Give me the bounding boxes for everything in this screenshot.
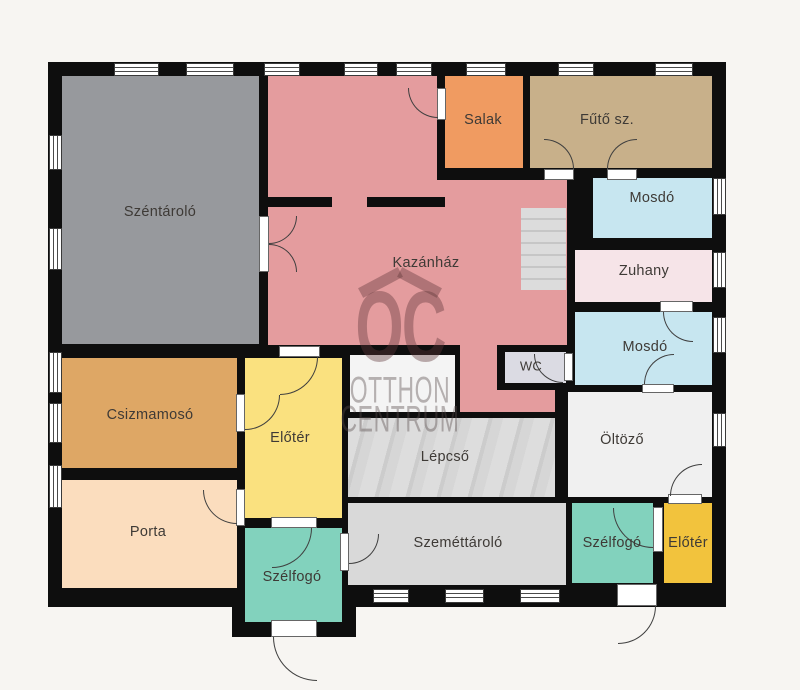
door-swing-szelfogo-jobb-kijarat [618, 606, 656, 644]
window [114, 63, 159, 76]
interior-wall [367, 197, 445, 207]
room-label-eloter-kozep: Előtér [270, 430, 310, 446]
door-opening-csizmamoso-eloter [236, 394, 245, 432]
door-opening-futo-bal [544, 169, 574, 180]
window [713, 252, 726, 288]
door-opening-szentarolo-kazanhaz [259, 216, 269, 272]
window [49, 228, 62, 270]
window [558, 63, 594, 76]
window [264, 63, 300, 76]
window [49, 135, 62, 170]
window [520, 589, 560, 603]
room-label-zuhany: Zuhany [619, 263, 669, 279]
window [373, 589, 409, 603]
door-opening-futo-jobb [607, 169, 637, 180]
window [713, 413, 726, 447]
room-kazanhaz [460, 390, 555, 412]
room-label-porta: Porta [130, 524, 166, 540]
window [186, 63, 234, 76]
window [466, 63, 506, 76]
room-label-salak: Salak [464, 112, 502, 128]
window [49, 403, 62, 443]
room-label-szelfogo-jobb: Szélfogó [583, 535, 642, 551]
room-label-mosdo-1: Mosdó [629, 190, 674, 206]
door-swing-szelfogo-bal-kijarat [273, 637, 317, 681]
window [344, 63, 378, 76]
room-label-futo-szoba: Fűtő sz. [580, 112, 634, 128]
room-label-lepcso: Lépcső [421, 449, 470, 465]
room-mosdo-1 [593, 178, 712, 238]
room-label-eloter-jobb: Előtér [668, 535, 708, 551]
door-opening-zuhany-mosdo [660, 301, 693, 312]
door-opening-salak-kazanhaz [437, 88, 446, 120]
window [49, 465, 62, 508]
door-opening-kazanhaz-eloter [279, 346, 320, 357]
room-label-szentarolo: Széntároló [124, 204, 196, 220]
door-opening-szelfogo-szemettarolo [340, 533, 349, 571]
interior-wall [268, 197, 332, 207]
door-opening-wc-mosdo [564, 353, 573, 381]
room-label-wc: WC [520, 359, 542, 374]
door-opening-mosdo-oltozo [642, 384, 674, 393]
window [713, 178, 726, 215]
room-label-mosdo-2: Mosdó [622, 339, 667, 355]
door-opening-szelfogo-bal-kijarat [271, 620, 317, 637]
room-label-szelfogo-bal: Szélfogó [263, 569, 322, 585]
window [445, 589, 484, 603]
window [713, 317, 726, 353]
room-label-szemettarolo: Szeméttároló [413, 535, 502, 551]
room-label-csizmamoso: Csizmamosó [107, 407, 194, 423]
door-opening-eloter-szelfogo-bal [271, 517, 317, 528]
window [396, 63, 432, 76]
window [655, 63, 693, 76]
door-opening-szelfogo-jobb-kijarat [617, 584, 657, 606]
room-label-oltozo: Öltöző [600, 432, 644, 448]
room-raktar [350, 355, 455, 412]
window [49, 352, 62, 393]
floor-plan: OC OTTHON CENTRUM SzéntárolóKazánházSala… [0, 0, 800, 690]
stairs [521, 208, 566, 290]
room-label-kazanhaz: Kazánház [393, 255, 460, 271]
door-opening-szelfogo-eloter-jobb [653, 507, 663, 552]
door-opening-porta-eloter [236, 489, 245, 526]
